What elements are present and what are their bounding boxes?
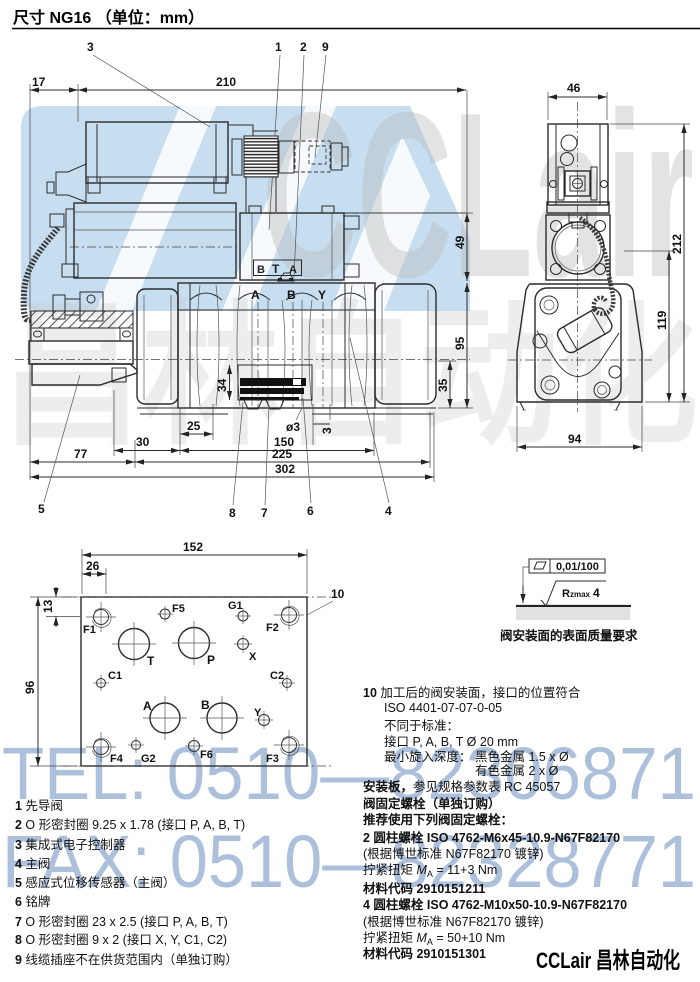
svg-text:F3: F3 [266, 753, 279, 765]
svg-text:119: 119 [655, 310, 669, 330]
svg-text:Y: Y [318, 288, 326, 302]
svg-text:9 线缆插座不在供货范围内（单独订购）: 9 线缆插座不在供货范围内（单独订购） [15, 952, 238, 967]
svg-text:5 感应式位移传感器（主阀）: 5 感应式位移传感器（主阀） [15, 875, 175, 890]
svg-text:4 圆柱螺栓 ISO 4762-M10x50-10.9-N6: 4 圆柱螺栓 ISO 4762-M10x50-10.9-N67F82170 [363, 897, 627, 912]
svg-text:2: 2 [300, 40, 307, 54]
svg-text:F6: F6 [200, 749, 213, 761]
svg-text:F2: F2 [266, 622, 279, 634]
svg-text:阀安装面的表面质量要求: 阀安装面的表面质量要求 [500, 628, 638, 643]
svg-text:5: 5 [38, 502, 45, 516]
svg-text:94: 94 [568, 432, 582, 446]
svg-text:302: 302 [275, 462, 295, 476]
svg-text:(根据博世标准 N67F82170 镀锌): (根据博世标准 N67F82170 镀锌) [363, 846, 544, 861]
svg-text:96: 96 [23, 680, 37, 694]
svg-text:9: 9 [322, 40, 329, 54]
svg-text:C2: C2 [270, 670, 284, 682]
svg-text:13: 13 [41, 599, 55, 613]
svg-text:4 主阀: 4 主阀 [15, 857, 50, 871]
svg-text:F1: F1 [83, 624, 96, 636]
svg-text:安装板，参见规格参数表 RC 45057: 安装板，参见规格参数表 RC 45057 [363, 779, 560, 794]
svg-text:ISO 4401-07-07-0-05: ISO 4401-07-07-0-05 [384, 701, 502, 715]
svg-text:尺寸 NG16 （单位：mm）: 尺寸 NG16 （单位：mm） [13, 8, 204, 27]
svg-text:152: 152 [183, 540, 203, 554]
svg-text:49: 49 [453, 235, 467, 249]
svg-text:材料代码 2910151211: 材料代码 2910151211 [362, 881, 485, 896]
svg-text:210: 210 [216, 75, 236, 89]
svg-text:6 铭牌: 6 铭牌 [15, 894, 50, 909]
svg-text:1 先导阀: 1 先导阀 [15, 799, 63, 813]
svg-text:10: 10 [331, 587, 345, 601]
svg-text:2 圆柱螺栓 ISO 4762-M6x45-10.9-N67: 2 圆柱螺栓 ISO 4762-M6x45-10.9-N67F82170 [363, 830, 620, 845]
svg-text:0,01/100: 0,01/100 [556, 561, 599, 573]
svg-text:G1: G1 [228, 600, 243, 612]
svg-text:(根据博世标准 N67F82170 镀锌): (根据博世标准 N67F82170 镀锌) [363, 914, 544, 929]
svg-text:35: 35 [436, 378, 450, 392]
svg-text:G2: G2 [141, 753, 156, 765]
svg-text:B: B [201, 698, 210, 712]
svg-text:P: P [207, 653, 215, 667]
svg-text:6: 6 [307, 504, 314, 518]
svg-text:T: T [272, 262, 280, 276]
svg-text:CCLair: CCLair [262, 63, 694, 326]
svg-text:Rzmax: Rzmax [562, 588, 591, 600]
svg-text:17: 17 [32, 75, 46, 89]
svg-text:3: 3 [320, 427, 334, 434]
svg-text:最小旋入深度： 黑色金属 1.5 x Ø: 最小旋入深度： 黑色金属 1.5 x Ø [384, 749, 569, 764]
svg-text:Y: Y [254, 707, 262, 719]
svg-text:TEL: 0510—82306871: TEL: 0510—82306871 [2, 732, 696, 815]
svg-text:3: 3 [87, 40, 94, 54]
svg-text:A: A [251, 288, 260, 302]
svg-text:46: 46 [567, 81, 581, 95]
svg-text:95: 95 [453, 336, 467, 350]
svg-text:X: X [249, 651, 257, 663]
svg-text:225: 225 [272, 447, 292, 461]
svg-text:8: 8 [229, 506, 236, 520]
svg-text:F4: F4 [110, 753, 124, 765]
svg-text:B: B [287, 288, 296, 302]
svg-text:1: 1 [275, 40, 282, 54]
svg-text:推荐使用下列阀固定螺栓：: 推荐使用下列阀固定螺栓： [363, 812, 513, 827]
svg-text:B: B [257, 264, 265, 276]
svg-text:4: 4 [385, 504, 392, 518]
svg-text:接口 P, A, B, T Ø 20 mm: 接口 P, A, B, T Ø 20 mm [384, 734, 518, 749]
svg-text:F5: F5 [172, 603, 185, 615]
svg-text:7 O 形密封圈 23 x 2.5 (接口 P, A, B: 7 O 形密封圈 23 x 2.5 (接口 P, A, B, T) [15, 914, 228, 929]
svg-text:30: 30 [136, 435, 150, 449]
svg-text:CCLair 昌林自动化: CCLair 昌林自动化 [536, 948, 680, 973]
svg-text:A: A [143, 699, 152, 713]
svg-text:26: 26 [86, 559, 100, 573]
svg-text:8 O 形密封圈 9 x 2 (接口 X, Y, C1,: 8 O 形密封圈 9 x 2 (接口 X, Y, C1, C2) [15, 932, 227, 947]
svg-text:拧紧扭矩 MA = 50+10 Nm: 拧紧扭矩 MA = 50+10 Nm [363, 931, 505, 947]
svg-text:10 加工后的阀安装面，接口的位置符合: 10 加工后的阀安装面，接口的位置符合 [363, 685, 581, 700]
svg-text:不同于标准：: 不同于标准： [384, 719, 459, 733]
svg-text:34: 34 [215, 378, 229, 392]
svg-text:4: 4 [593, 586, 600, 600]
svg-text:25: 25 [187, 419, 201, 433]
svg-text:T: T [147, 654, 155, 668]
svg-text:有色金属 2 x Ø: 有色金属 2 x Ø [475, 763, 559, 778]
svg-text:77: 77 [74, 447, 88, 461]
svg-text:材料代码 2910151301: 材料代码 2910151301 [362, 946, 486, 961]
svg-text:C1: C1 [108, 670, 122, 682]
svg-text:阀固定螺栓（单独订购）: 阀固定螺栓（单独订购） [363, 796, 501, 811]
svg-text:2 O 形密封圈 9.25 x 1.78 (接口 P, A: 2 O 形密封圈 9.25 x 1.78 (接口 P, A, B, T) [15, 817, 245, 832]
svg-text:3 集成式电子控制器: 3 集成式电子控制器 [15, 837, 126, 852]
svg-text:ø3: ø3 [286, 420, 300, 434]
svg-text:7: 7 [261, 506, 268, 520]
